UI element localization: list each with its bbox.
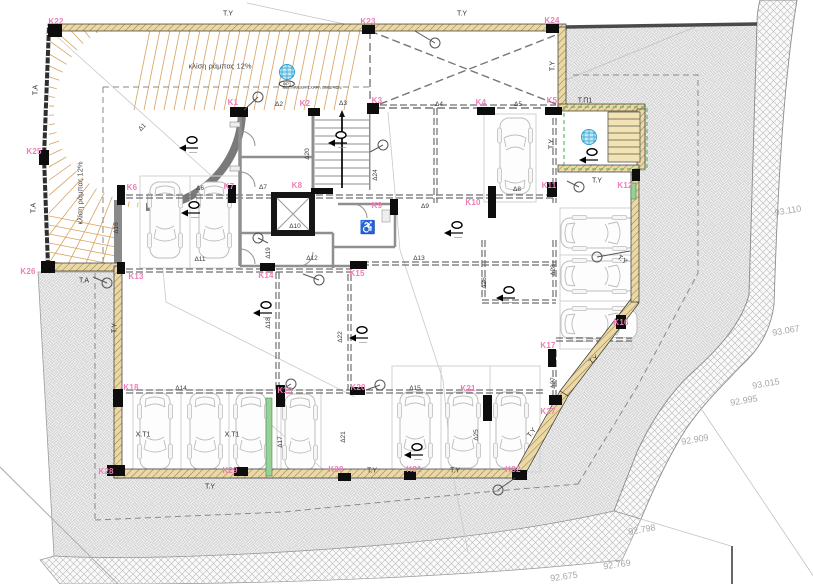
column [549, 395, 562, 405]
column [308, 108, 320, 116]
column [548, 349, 556, 367]
column [367, 103, 379, 114]
stair-core [315, 110, 369, 190]
column [483, 395, 492, 421]
column [390, 199, 398, 215]
column [338, 473, 351, 481]
column [488, 186, 496, 218]
column [117, 262, 125, 274]
floor-plan-page: K1K2K3K4K5K6K7K8K9K10K11K12K13K14K15K16K… [0, 0, 813, 584]
column [350, 387, 365, 395]
column [39, 150, 49, 165]
column [362, 25, 375, 34]
column [547, 182, 557, 197]
column [117, 185, 125, 205]
column [546, 24, 559, 33]
column [48, 24, 62, 37]
green-strip [266, 398, 272, 476]
column [404, 471, 416, 480]
exterior-stair [608, 112, 640, 162]
column [632, 169, 640, 181]
column [113, 389, 123, 407]
column [107, 465, 125, 476]
drain-grate-icon [280, 65, 295, 80]
drain-grate-icon [582, 130, 597, 145]
green-strip [631, 183, 636, 199]
column [260, 263, 275, 271]
column [545, 107, 562, 115]
column [41, 261, 55, 273]
wall-panel [230, 122, 240, 127]
column [234, 467, 248, 476]
column [616, 315, 626, 329]
wc-fixture [382, 210, 390, 222]
column [350, 261, 367, 269]
elevator-shaft [271, 192, 315, 236]
wall-panel [230, 166, 240, 171]
column [311, 188, 333, 194]
cross-zone [370, 31, 566, 108]
column [228, 185, 236, 203]
floor-plan-drawing [0, 0, 813, 584]
ramp-side-wall [114, 200, 122, 268]
column [477, 107, 495, 115]
